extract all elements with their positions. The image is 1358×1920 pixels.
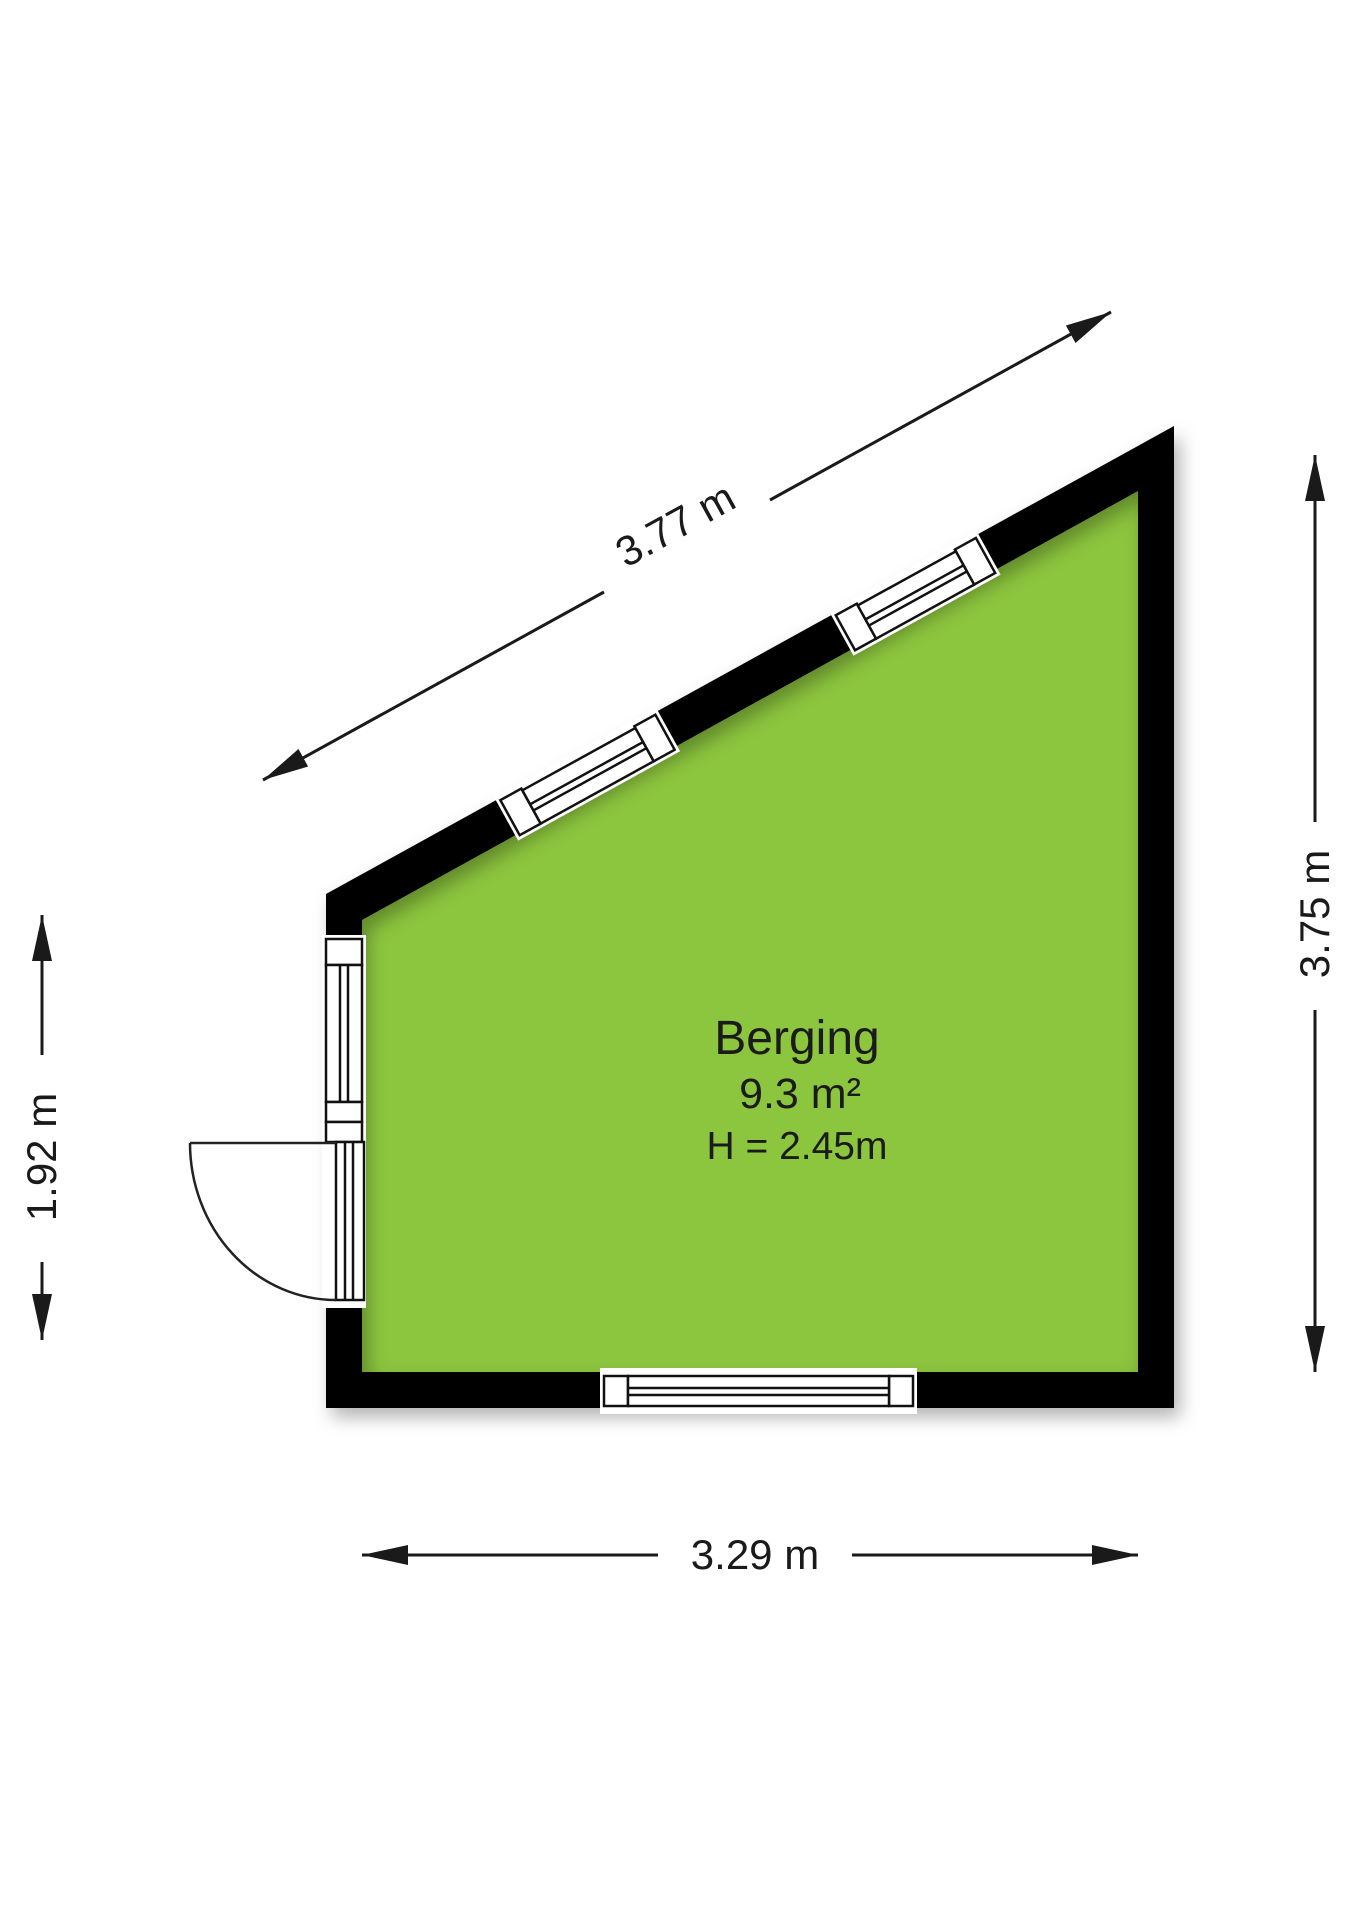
- dimension-right: 3.75 m: [1291, 455, 1338, 1372]
- dimension-label-right: 3.75 m: [1291, 850, 1338, 978]
- arrow-down-left-icon: [258, 749, 308, 789]
- window-bottom: [600, 1368, 917, 1414]
- window-left: [326, 965, 362, 1102]
- arrow-up-icon: [1305, 455, 1325, 501]
- arrow-up-icon: [32, 915, 52, 961]
- dimension-label-top-diagonal: 3.77 m: [608, 473, 743, 576]
- room-height-label: H = 2.45m: [706, 1125, 887, 1168]
- door-swing-arc: [190, 1143, 336, 1300]
- room-name-label: Berging: [714, 1012, 879, 1065]
- floor-area: [362, 491, 1138, 1372]
- arrow-down-icon: [1305, 1326, 1325, 1372]
- left-wall-openings: [190, 935, 366, 1308]
- floorplan-page: 3.77 m 3.75 m 1.92 m 3.29 m Berging 9.3 …: [0, 0, 1358, 1920]
- left-window-cap-top: [326, 939, 362, 965]
- room-area-label: 9.3 m²: [739, 1070, 861, 1118]
- arrow-right-icon: [1092, 1545, 1138, 1565]
- dimension-left: 1.92 m: [18, 915, 65, 1340]
- floorplan-canvas: 3.77 m 3.75 m 1.92 m 3.29 m Berging 9.3 …: [0, 0, 1358, 1920]
- door: [190, 1142, 364, 1300]
- arrow-left-icon: [362, 1545, 408, 1565]
- dimension-bottom: 3.29 m: [362, 1531, 1138, 1578]
- arrow-up-right-icon: [1066, 303, 1116, 343]
- dimension-label-bottom: 3.29 m: [691, 1531, 819, 1578]
- dimension-label-left: 1.92 m: [18, 1093, 65, 1221]
- window-mullion: [326, 1102, 362, 1142]
- arrow-down-icon: [32, 1294, 52, 1340]
- door-panel: [336, 1142, 364, 1300]
